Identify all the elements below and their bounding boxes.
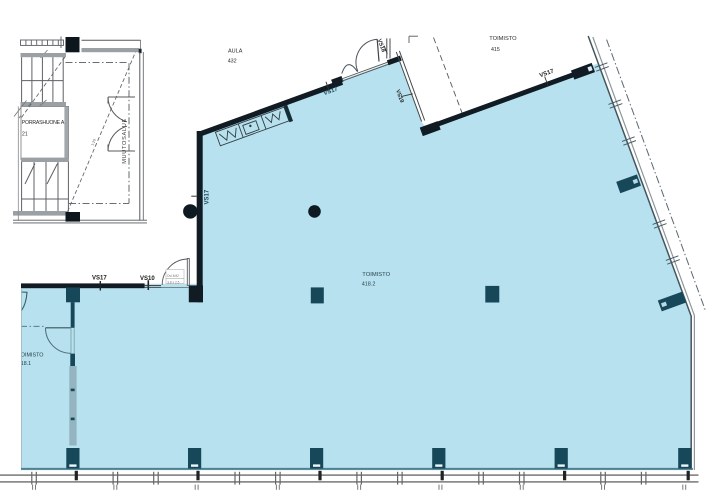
svg-text:418.2: 418.2 bbox=[362, 281, 376, 287]
svg-text:3,8 x 2,5: 3,8 x 2,5 bbox=[167, 280, 179, 284]
svg-text:VS17: VS17 bbox=[92, 275, 107, 281]
svg-text:MUUTOSALUE: MUUTOSALUE bbox=[122, 119, 128, 164]
svg-text:TOIMISTO: TOIMISTO bbox=[362, 272, 390, 278]
svg-text:AULA: AULA bbox=[228, 49, 243, 55]
svg-text:PORRASHUONE A: PORRASHUONE A bbox=[22, 120, 65, 126]
svg-text:VS17: VS17 bbox=[204, 189, 210, 204]
svg-text:OIMISTO: OIMISTO bbox=[21, 353, 44, 359]
svg-text:415: 415 bbox=[491, 47, 500, 53]
svg-text:Ovi 4M2: Ovi 4M2 bbox=[167, 274, 179, 278]
svg-text:432: 432 bbox=[228, 58, 237, 64]
svg-text:21: 21 bbox=[22, 132, 28, 138]
svg-text:18.1: 18.1 bbox=[21, 361, 31, 367]
svg-text:TOIMISTO: TOIMISTO bbox=[489, 36, 517, 42]
